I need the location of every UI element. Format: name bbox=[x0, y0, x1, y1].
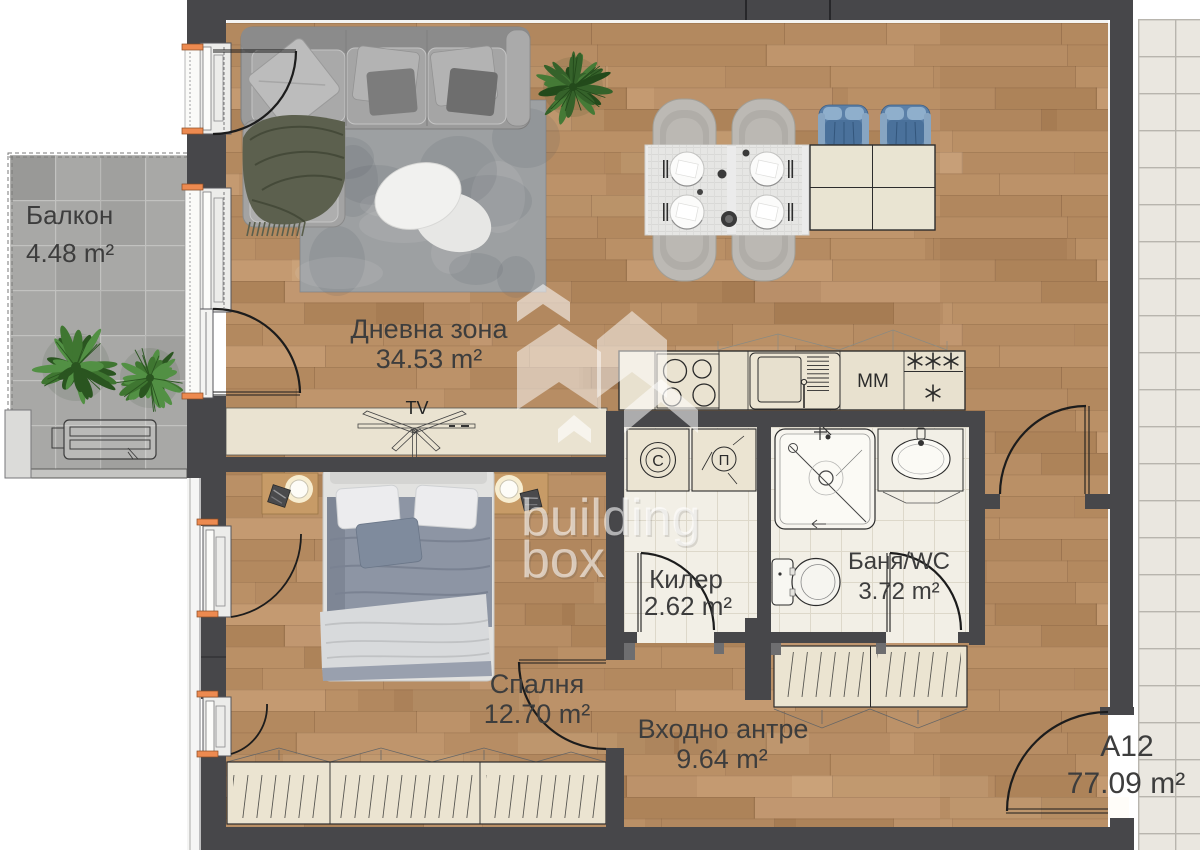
svg-text:Спалня: Спалня bbox=[490, 669, 584, 699]
svg-text:Баня/WC: Баня/WC bbox=[848, 548, 950, 575]
svg-text:A12: A12 bbox=[1100, 730, 1153, 763]
svg-text:34.53 m²: 34.53 m² bbox=[376, 344, 483, 374]
svg-text:Входно антре: Входно антре bbox=[638, 714, 809, 744]
svg-text:9.64 m²: 9.64 m² bbox=[676, 744, 768, 774]
svg-text:П: П bbox=[719, 452, 730, 469]
svg-text:Дневна зона: Дневна зона bbox=[350, 314, 508, 344]
svg-text:box: box bbox=[521, 531, 605, 589]
svg-text:4.48 m²: 4.48 m² bbox=[26, 238, 114, 268]
svg-text:MM: MM bbox=[857, 371, 889, 392]
svg-text:3.72 m²: 3.72 m² bbox=[858, 578, 939, 605]
svg-text:TV: TV bbox=[405, 398, 428, 418]
svg-text:12.70 m²: 12.70 m² bbox=[484, 699, 591, 729]
svg-text:Балкон: Балкон bbox=[26, 200, 113, 230]
svg-text:77.09 m²: 77.09 m² bbox=[1067, 767, 1185, 800]
svg-text:Килер: Килер bbox=[649, 564, 723, 594]
svg-text:2.62 m²: 2.62 m² bbox=[644, 591, 732, 621]
svg-text:C: C bbox=[652, 453, 664, 470]
